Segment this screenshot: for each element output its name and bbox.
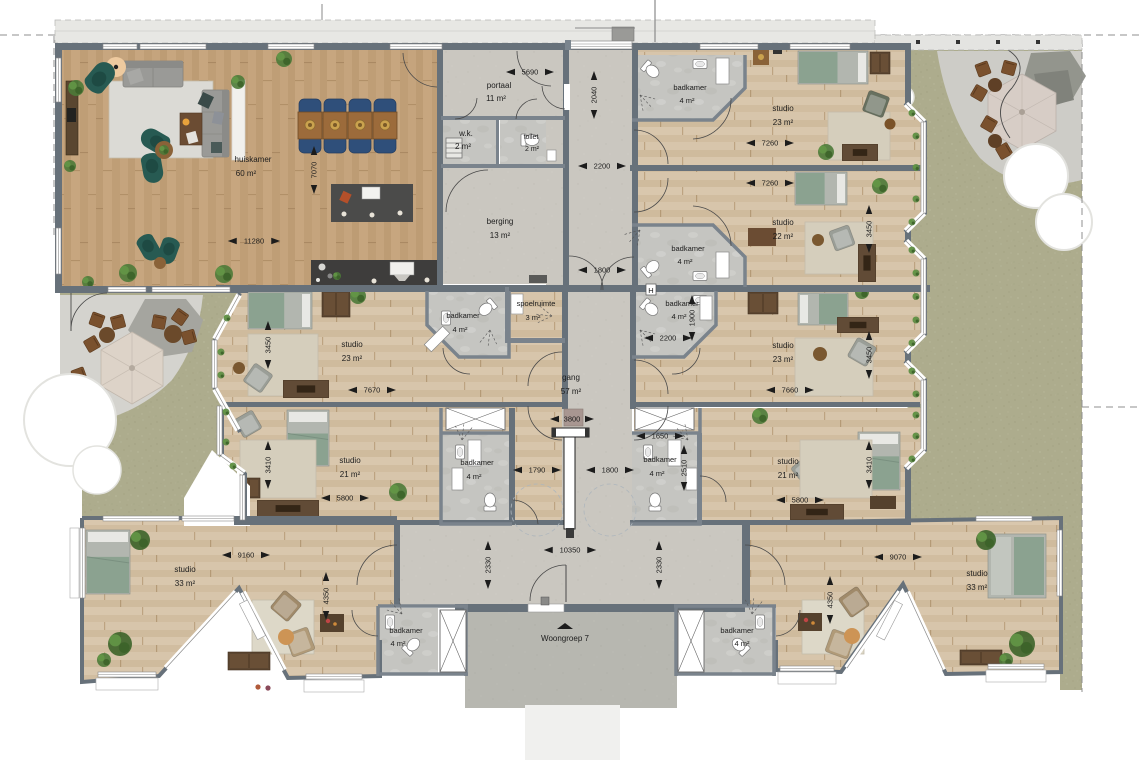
svg-text:studio: studio — [772, 341, 794, 350]
svg-text:7260: 7260 — [762, 179, 779, 188]
svg-text:3410: 3410 — [264, 457, 273, 474]
svg-text:2200: 2200 — [660, 334, 677, 343]
svg-text:2 m²: 2 m² — [525, 146, 540, 153]
svg-text:5690: 5690 — [522, 68, 539, 77]
svg-text:3 m²: 3 m² — [526, 313, 542, 322]
svg-text:5800: 5800 — [792, 496, 809, 505]
svg-text:badkamer: badkamer — [446, 311, 480, 320]
svg-text:badkamer: badkamer — [643, 455, 677, 464]
svg-text:7660: 7660 — [782, 386, 799, 395]
svg-text:badkamer: badkamer — [720, 626, 754, 635]
svg-text:2330: 2330 — [655, 557, 664, 574]
svg-text:4 m²: 4 m² — [672, 312, 688, 321]
svg-text:22 m²: 22 m² — [773, 232, 794, 241]
svg-text:3410: 3410 — [865, 457, 874, 474]
svg-text:9160: 9160 — [238, 551, 255, 560]
svg-text:23 m²: 23 m² — [342, 354, 363, 363]
svg-text:3800: 3800 — [564, 415, 581, 424]
svg-text:4 m²: 4 m² — [650, 469, 666, 478]
svg-text:60 m²: 60 m² — [236, 169, 257, 178]
svg-text:Woongroep 7: Woongroep 7 — [541, 634, 589, 643]
svg-text:2040: 2040 — [590, 87, 599, 104]
svg-text:5800: 5800 — [337, 494, 354, 503]
svg-text:gang: gang — [562, 373, 580, 382]
svg-text:studio: studio — [341, 340, 363, 349]
svg-text:4 m²: 4 m² — [678, 257, 694, 266]
svg-text:3450: 3450 — [264, 337, 273, 354]
svg-text:4 m²: 4 m² — [391, 639, 407, 648]
svg-text:badkamer: badkamer — [460, 458, 494, 467]
svg-text:toilet: toilet — [524, 134, 539, 141]
svg-text:1800: 1800 — [602, 466, 619, 475]
svg-text:studio: studio — [174, 565, 196, 574]
svg-text:1800: 1800 — [594, 266, 611, 275]
svg-text:7260: 7260 — [762, 139, 779, 148]
svg-text:9070: 9070 — [890, 553, 907, 562]
svg-text:portaal: portaal — [487, 81, 512, 90]
svg-text:4 m²: 4 m² — [680, 96, 696, 105]
svg-text:11 m²: 11 m² — [486, 94, 506, 103]
svg-text:10350: 10350 — [560, 546, 581, 555]
svg-text:4 m²: 4 m² — [735, 639, 751, 648]
svg-text:21 m²: 21 m² — [778, 471, 799, 480]
svg-text:4 m²: 4 m² — [453, 325, 469, 334]
svg-text:4 m²: 4 m² — [467, 472, 483, 481]
svg-text:studio: studio — [777, 457, 799, 466]
svg-text:4350: 4350 — [322, 588, 331, 605]
svg-text:2330: 2330 — [484, 557, 493, 574]
svg-text:2510: 2510 — [680, 460, 689, 477]
svg-text:11280: 11280 — [244, 237, 264, 246]
svg-text:33 m²: 33 m² — [175, 579, 196, 588]
svg-text:studio: studio — [339, 456, 361, 465]
svg-text:4350: 4350 — [826, 592, 835, 609]
svg-text:H: H — [648, 286, 653, 295]
svg-text:23 m²: 23 m² — [773, 355, 794, 364]
svg-text:spoelruimte: spoelruimte — [517, 299, 556, 308]
svg-text:7070: 7070 — [310, 162, 319, 179]
svg-text:badkamer: badkamer — [673, 83, 707, 92]
svg-text:3450: 3450 — [865, 221, 874, 238]
svg-text:badkamer: badkamer — [389, 626, 423, 635]
svg-text:1900: 1900 — [688, 310, 697, 327]
svg-text:13 m²: 13 m² — [490, 231, 511, 240]
svg-text:2200: 2200 — [594, 162, 611, 171]
svg-text:badkamer: badkamer — [671, 244, 705, 253]
svg-text:2 m²: 2 m² — [455, 142, 471, 151]
svg-text:33 m²: 33 m² — [967, 583, 988, 592]
svg-text:3450: 3450 — [865, 347, 874, 364]
svg-text:huiskamer: huiskamer — [235, 155, 272, 164]
svg-text:studio: studio — [772, 218, 794, 227]
svg-text:21 m²: 21 m² — [340, 470, 361, 479]
svg-text:berging: berging — [487, 217, 514, 226]
svg-text:23 m²: 23 m² — [773, 118, 794, 127]
svg-text:1650: 1650 — [652, 432, 669, 441]
svg-text:57 m²: 57 m² — [561, 387, 582, 396]
svg-text:studio: studio — [772, 104, 794, 113]
svg-text:7670: 7670 — [364, 386, 381, 395]
svg-text:1790: 1790 — [529, 466, 546, 475]
svg-text:w.k.: w.k. — [458, 129, 473, 138]
svg-text:studio: studio — [966, 569, 988, 578]
